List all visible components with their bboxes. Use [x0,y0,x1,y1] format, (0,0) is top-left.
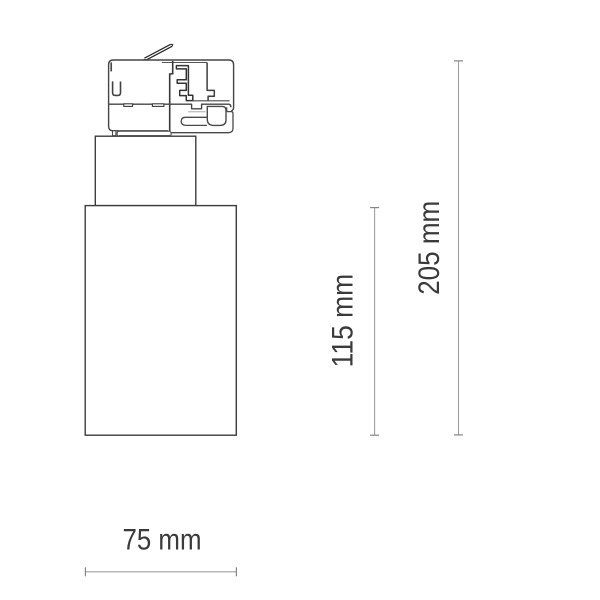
svg-text:205 mm: 205 mm [413,201,446,295]
svg-text:75 mm: 75 mm [123,524,202,557]
svg-text:115 mm: 115 mm [326,274,359,368]
